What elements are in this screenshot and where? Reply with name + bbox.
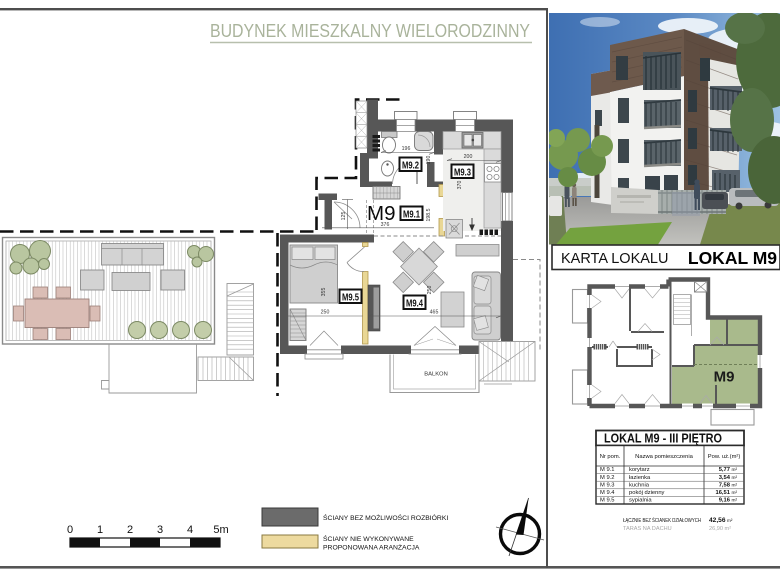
- svg-text:pokój dzienny: pokój dzienny: [629, 490, 665, 496]
- svg-text:376: 376: [381, 222, 390, 228]
- svg-text:sypialnia: sypialnia: [629, 498, 652, 504]
- svg-text:5,77: 5,77: [719, 467, 730, 473]
- svg-text:M9: M9: [714, 369, 735, 386]
- svg-text:1: 1: [97, 524, 103, 536]
- svg-text:2: 2: [127, 524, 133, 536]
- svg-text:m²: m²: [732, 467, 738, 473]
- svg-text:BUDYNEK MIESZKALNY WIELORODZIN: BUDYNEK MIESZKALNY WIELORODZINNY: [210, 21, 530, 41]
- svg-text:200: 200: [464, 154, 473, 160]
- svg-text:M 9.2: M 9.2: [600, 475, 615, 481]
- svg-text:m²: m²: [732, 490, 738, 496]
- svg-text:42,56: 42,56: [709, 517, 726, 524]
- svg-text:TARAS NA DACHU: TARAS NA DACHU: [623, 526, 672, 532]
- svg-text:196: 196: [402, 146, 411, 152]
- svg-text:LOKAL M9 - III PIĘTRO: LOKAL M9 - III PIĘTRO: [604, 432, 722, 446]
- svg-text:łazienka: łazienka: [629, 475, 651, 481]
- svg-text:Nazwa pomieszczenia: Nazwa pomieszczenia: [635, 454, 693, 460]
- svg-text:355: 355: [321, 288, 327, 297]
- svg-text:M9.3: M9.3: [454, 166, 471, 178]
- svg-text:4: 4: [187, 524, 193, 536]
- svg-text:M9.5: M9.5: [342, 291, 359, 303]
- svg-text:3: 3: [157, 524, 163, 536]
- svg-text:370: 370: [457, 181, 463, 190]
- svg-text:ŚCIANY NIE WYKONYWANE: ŚCIANY NIE WYKONYWANE: [323, 534, 414, 543]
- svg-text:LOKAL M9: LOKAL M9: [688, 248, 777, 268]
- svg-text:16,51: 16,51: [715, 490, 730, 496]
- svg-text:5m: 5m: [213, 524, 228, 536]
- svg-text:125: 125: [341, 212, 347, 221]
- svg-text:Pow. uż.(m²): Pow. uż.(m²): [708, 454, 741, 460]
- svg-text:M 9.5: M 9.5: [600, 498, 615, 504]
- svg-text:ŁĄCZNIE BEZ ŚCIANEK DZIAŁOWYCH: ŁĄCZNIE BEZ ŚCIANEK DZIAŁOWYCH: [623, 516, 701, 524]
- svg-text:M9.4: M9.4: [406, 297, 423, 309]
- svg-text:PROPONOWANA ARANŻACJA: PROPONOWANA ARANŻACJA: [323, 543, 420, 552]
- svg-text:m²: m²: [732, 482, 738, 488]
- svg-text:0: 0: [67, 524, 73, 536]
- svg-text:ŚCIANY BEZ MOŻLIWOŚCI ROZBIÓRK: ŚCIANY BEZ MOŻLIWOŚCI ROZBIÓRKI: [323, 513, 448, 522]
- svg-text:m²: m²: [732, 498, 738, 504]
- svg-text:465: 465: [430, 310, 439, 316]
- svg-text:KARTA LOKALU: KARTA LOKALU: [561, 251, 668, 267]
- svg-text:7,58: 7,58: [719, 482, 731, 488]
- svg-text:190: 190: [426, 156, 432, 165]
- svg-text:3,54: 3,54: [719, 475, 731, 481]
- svg-text:M 9.1: M 9.1: [600, 467, 615, 473]
- svg-text:M9.2: M9.2: [402, 159, 419, 171]
- svg-text:M 9.4: M 9.4: [600, 490, 615, 496]
- svg-text:9,16: 9,16: [719, 498, 731, 504]
- svg-text:Nr pom.: Nr pom.: [600, 454, 621, 460]
- svg-text:250: 250: [427, 286, 433, 295]
- svg-text:kuchnia: kuchnia: [629, 482, 650, 488]
- svg-text:M9.1: M9.1: [403, 208, 420, 220]
- svg-text:26,90 m²: 26,90 m²: [709, 526, 731, 532]
- svg-text:250: 250: [321, 310, 330, 316]
- svg-text:m²: m²: [727, 518, 733, 523]
- svg-text:198.5: 198.5: [426, 208, 432, 221]
- svg-text:korytarz: korytarz: [629, 467, 650, 473]
- svg-text:BALKON: BALKON: [424, 372, 448, 378]
- svg-text:m²: m²: [732, 475, 738, 481]
- svg-text:M 9.3: M 9.3: [600, 482, 615, 488]
